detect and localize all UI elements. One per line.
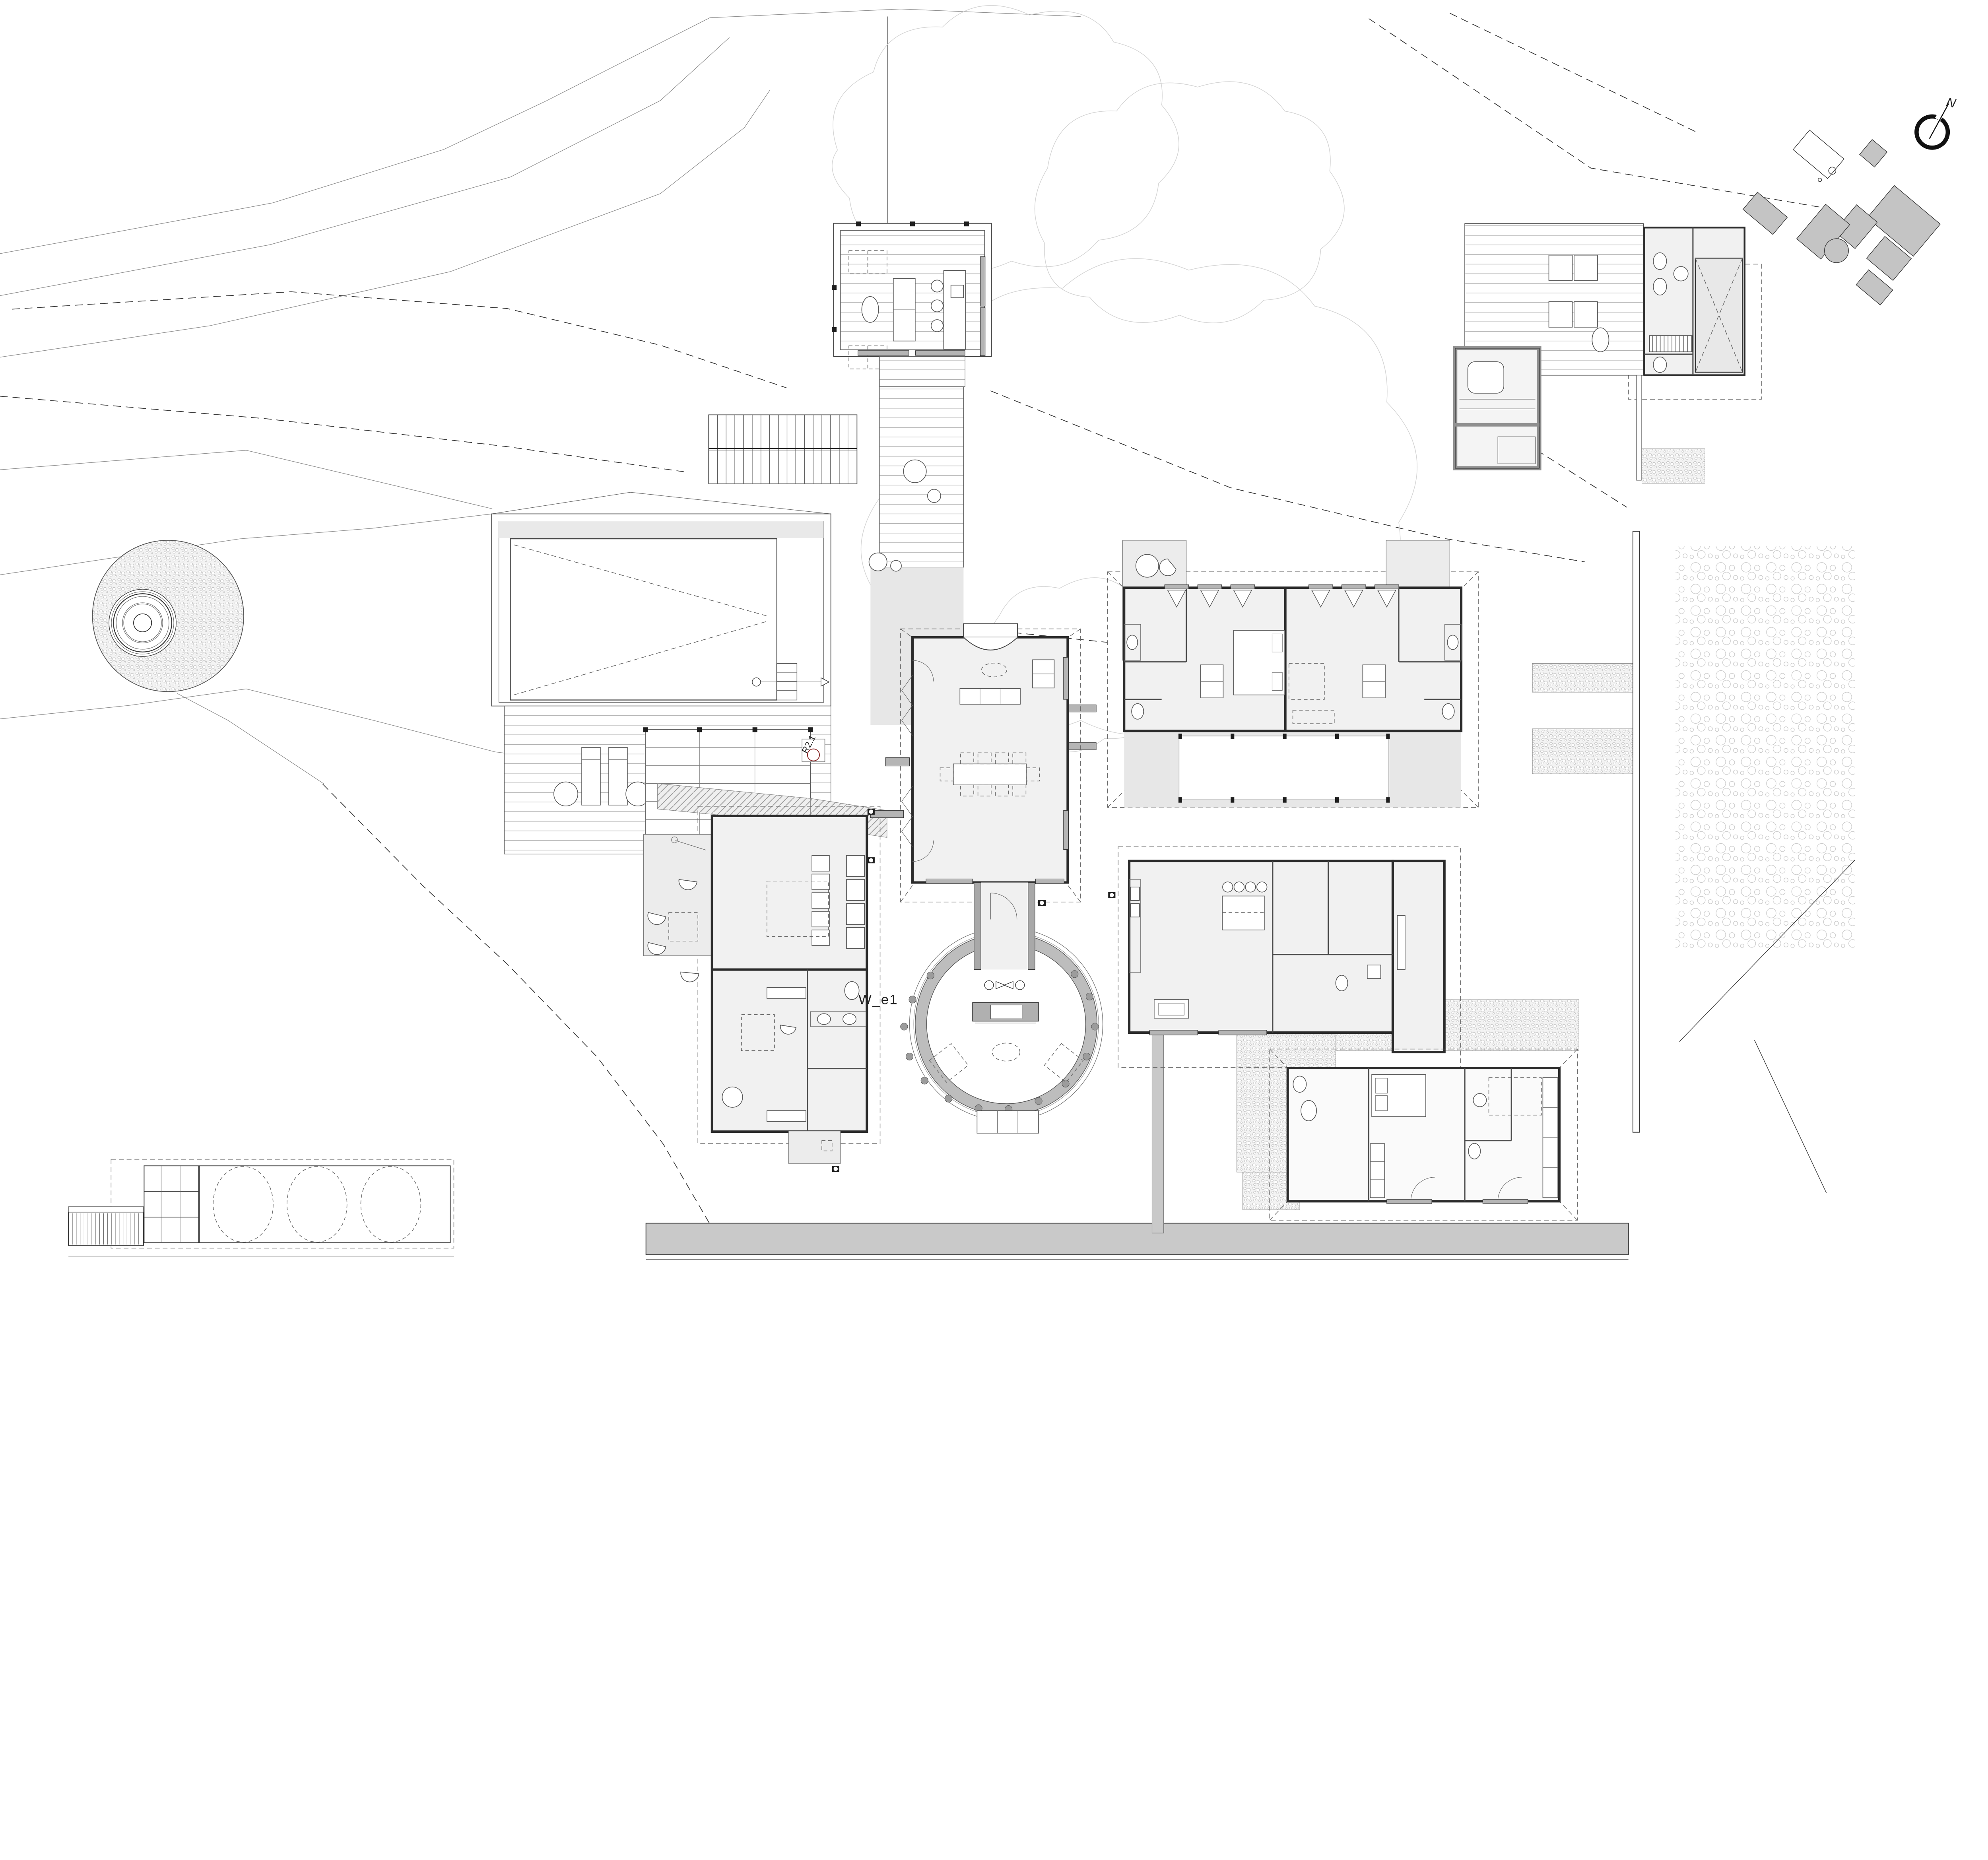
sauna (1455, 348, 1539, 468)
room-label: W_e1 (858, 992, 898, 1007)
bedroom-wing-building (1124, 588, 1461, 731)
lap-pool (510, 539, 777, 700)
west-wing-building (712, 816, 867, 1132)
pool-complex: R2.1 (492, 492, 887, 854)
kitchen-island (1222, 896, 1264, 930)
link-bench (870, 810, 903, 817)
pavilion-gravel (1642, 449, 1705, 483)
drain-grate (1649, 336, 1692, 352)
outdoor-bench (885, 757, 909, 766)
bath-pavilion (1644, 227, 1745, 375)
water-tank-circle (93, 540, 244, 691)
guest-house (1270, 1049, 1577, 1220)
access-road (646, 1223, 1629, 1259)
main-hall (885, 624, 1081, 906)
courtyard-lawn (1179, 736, 1389, 799)
link-walk-south (1068, 743, 1096, 750)
pavilion-walkway (1637, 375, 1641, 480)
outdoor-stair (709, 415, 857, 484)
pavilion-entry-deck (879, 357, 965, 386)
shed-deck (68, 1207, 144, 1246)
site-plan-drawing: R2.1 (0, 0, 1988, 1404)
dining-table (953, 764, 1026, 785)
link-walk-north (1068, 705, 1096, 712)
bed-west (1234, 630, 1285, 695)
south-porch (788, 1131, 841, 1164)
pool-edge-band (499, 521, 824, 538)
west-terrace (644, 835, 712, 956)
site-plan-sheet: R2.1 (0, 0, 1988, 1404)
